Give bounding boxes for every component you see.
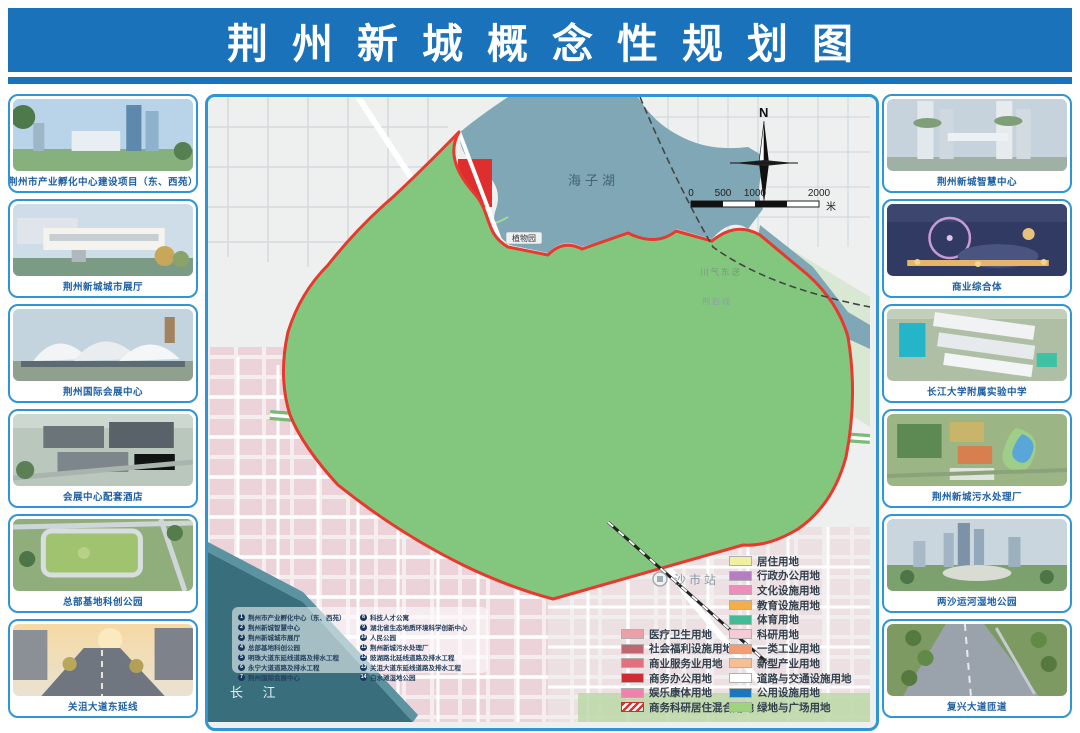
thumbnail-incubation-center (13, 99, 193, 171)
project-list-item: 9湖北省生态地质环境科学创新中心 (360, 622, 482, 632)
legend-right-column: 居住用地 行政办公用地 文化设施用地 教育设施用地 体育用地 科研用地 一类工业… (729, 554, 852, 715)
project-card: 荆州国际会展中心 (8, 304, 198, 403)
project-caption: 复兴大道匝道 (887, 696, 1067, 715)
project-list-item: 2荆州新城智慧中心 (238, 622, 360, 632)
legend-item: 科研用地 (729, 627, 852, 642)
project-caption: 会展中心配套酒店 (13, 486, 193, 505)
project-caption: 关沮大道东延线 (13, 696, 193, 715)
project-list-item: 10人民公园 (360, 632, 482, 642)
legend-swatch (729, 585, 752, 595)
project-caption: 长江大学附属实验中学 (887, 381, 1067, 400)
legend-swatch (729, 615, 752, 625)
scale-unit: 米 (826, 200, 836, 213)
projects-right-column: 8科技人才公寓 9湖北省生态地质环境科学创新中心 10人民公园 11荆州新城污水… (360, 612, 482, 668)
project-card: 两沙运河湿地公园 (882, 514, 1072, 613)
project-card: 总部基地科创公园 (8, 514, 198, 613)
thumbnail-sewage-plant (887, 414, 1067, 486)
scale-tick-1000: 1000 (744, 188, 767, 199)
project-caption: 荆州新城污水处理厂 (887, 486, 1067, 505)
legend-swatch (729, 644, 752, 654)
project-number: 12 (360, 654, 367, 661)
legend-swatch-hatched (621, 702, 644, 712)
project-number: 11 (360, 644, 367, 651)
project-list-item: 1荆州市产业孵化中心（东、西苑） (238, 612, 360, 622)
thumbnail-avenue-extension (13, 624, 193, 696)
legend-item: 文化设施用地 (729, 583, 852, 598)
project-list-item: 6永宁大道道路及排水工程 (238, 662, 360, 672)
project-number: 3 (238, 634, 245, 641)
project-number: 10 (360, 634, 367, 641)
legend-swatch (729, 673, 752, 683)
project-number: 9 (360, 624, 367, 631)
legend-swatch (729, 629, 752, 639)
project-list-item: 5明珠大道东延线道路及排水工程 (238, 652, 360, 662)
project-card: 复兴大道匝道 (882, 619, 1072, 718)
project-list-item: 3荆州新城城市展厅 (238, 632, 360, 642)
project-list-item: 11荆州新城污水处理厂 (360, 642, 482, 652)
projects-left-column: 1荆州市产业孵化中心（东、西苑） 2荆州新城智慧中心 3荆州新城城市展厅 4总部… (238, 612, 360, 668)
project-caption: 两沙运河湿地公园 (887, 591, 1067, 610)
thumbnail-commercial-complex (887, 204, 1067, 276)
legend-item: 绿地与广场用地 (729, 700, 852, 715)
project-caption: 荆州新城城市展厅 (13, 276, 193, 295)
project-card: 荆州新城污水处理厂 (882, 409, 1072, 508)
legend-item: 体育用地 (729, 612, 852, 627)
project-list-item: 7荆州国际会展中心 (238, 672, 360, 682)
project-list-item: 4总部基地科创公园 (238, 642, 360, 652)
legend-item: 居住用地 (729, 554, 852, 569)
legend-swatch (729, 702, 752, 712)
project-list-item: 14白水滩湿地公园 (360, 672, 482, 682)
planning-poster: { "title": "荆州新城概念性规划图", "left_sidebar":… (0, 0, 1080, 733)
garden-label: 植物园 (512, 233, 536, 243)
thumbnail-canal-wetland-park (887, 519, 1067, 591)
project-number: 5 (238, 654, 245, 661)
garden-label-box: 植物园 (506, 232, 542, 244)
project-card: 荆州新城城市展厅 (8, 199, 198, 298)
scale-tick-2000: 2000 (808, 188, 831, 199)
project-list-item: 12豉湖路北延线道路及排水工程 (360, 652, 482, 662)
project-card: 商业综合体 (882, 199, 1072, 298)
project-number: 7 (238, 674, 245, 681)
legend-swatch (729, 658, 752, 668)
thumbnail-city-exhibition-hall (13, 204, 193, 276)
legend-swatch (729, 556, 752, 566)
project-card: 会展中心配套酒店 (8, 409, 198, 508)
project-caption: 荆州国际会展中心 (13, 381, 193, 400)
project-number: 1 (238, 614, 245, 621)
project-number: 2 (238, 624, 245, 631)
scale-tick-0: 0 (688, 188, 694, 199)
thumbnail-fuxing-avenue (887, 624, 1067, 696)
project-number: 14 (360, 674, 367, 681)
legend-swatch (621, 658, 644, 668)
legend-swatch (729, 600, 752, 610)
project-number: 8 (360, 614, 367, 621)
right-sidebar: 荆州新城智慧中心 商业综合体 长江大学附属实验中学 (882, 94, 1072, 724)
pipeline-label: 川气东送 (700, 267, 742, 277)
project-number: 4 (238, 644, 245, 651)
legend-item: 公用设施用地 (729, 685, 852, 700)
project-card: 荆州市产业孵化中心建设项目（东、西苑） (8, 94, 198, 193)
planning-map: 长 江 沙市站 川气东送 荆石线 海子湖 植物园 N (205, 94, 879, 731)
legend-item: 道路与交通设施用地 (729, 671, 852, 686)
page-title: 荆州新城概念性规划图 (203, 10, 877, 70)
legend-swatch (621, 673, 644, 683)
river-label: 长 江 (230, 685, 284, 700)
thumbnail-hq-park (13, 519, 193, 591)
left-sidebar: 荆州市产业孵化中心建设项目（东、西苑） 荆州新城城市展厅 荆州国际会展中心 会展… (8, 94, 198, 724)
north-label: N (759, 105, 768, 120)
legend-item: 行政办公用地 (729, 569, 852, 584)
legend-swatch (621, 629, 644, 639)
project-caption: 总部基地科创公园 (13, 591, 193, 610)
key-projects-list: 1荆州市产业孵化中心（东、西苑） 2荆州新城智慧中心 3荆州新城城市展厅 4总部… (232, 607, 488, 673)
project-number: 6 (238, 664, 245, 671)
thumbnail-convention-center (13, 309, 193, 381)
legend-item: 一类工业用地 (729, 642, 852, 657)
thumbnail-smart-center (887, 99, 1067, 171)
rail-line-label: 荆石线 (702, 296, 732, 306)
project-caption: 荆州新城智慧中心 (887, 171, 1067, 190)
project-card: 荆州新城智慧中心 (882, 94, 1072, 193)
project-caption: 商业综合体 (887, 276, 1067, 295)
project-list-item: 8科技人才公寓 (360, 612, 482, 622)
legend-item: 新型产业用地 (729, 656, 852, 671)
project-number: 13 (360, 664, 367, 671)
scale-tick-500: 500 (715, 188, 732, 199)
project-card: 关沮大道东延线 (8, 619, 198, 718)
legend-swatch (621, 688, 644, 698)
project-caption: 荆州市产业孵化中心建设项目（东、西苑） (13, 171, 193, 190)
thumbnail-experimental-school (887, 309, 1067, 381)
project-list-item: 13关沮大道东延线道路及排水工程 (360, 662, 482, 672)
legend-swatch (621, 644, 644, 654)
legend-item: 教育设施用地 (729, 598, 852, 613)
project-card: 长江大学附属实验中学 (882, 304, 1072, 403)
page-header: 荆州新城概念性规划图 (8, 8, 1072, 72)
legend-swatch (729, 571, 752, 581)
legend-swatch (729, 688, 752, 698)
header-underline (8, 77, 1072, 84)
thumbnail-hotel (13, 414, 193, 486)
lake-label: 海子湖 (568, 173, 619, 188)
map-legend: 医疗卫生用地 社会福利设施用地 商业服务业用地 商务办公用地 娱乐康体用地 商务… (611, 548, 867, 720)
